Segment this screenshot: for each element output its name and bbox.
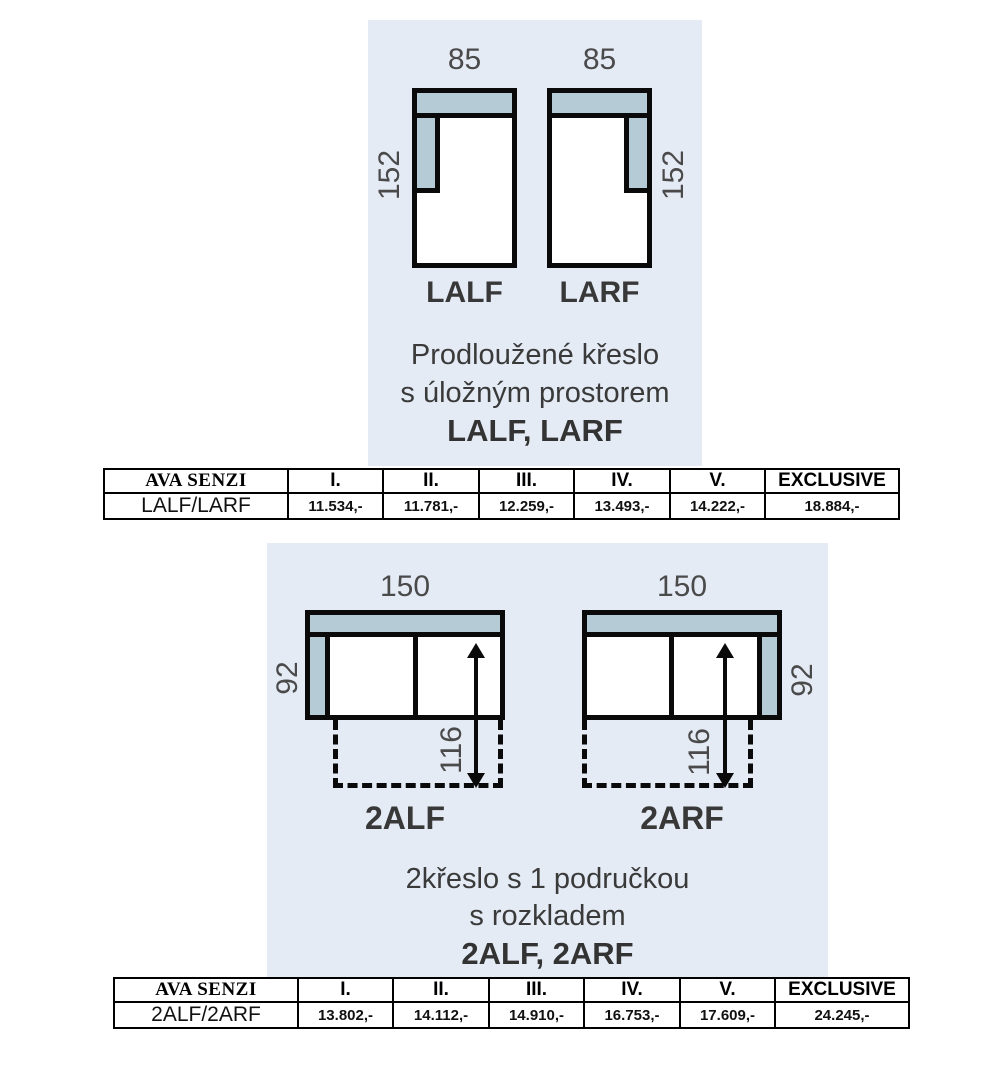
2arf-model-label: 2ARF [582, 801, 782, 835]
catalog-page: { "colors": { "panel_bg": "#e4ebf5", "cu… [0, 0, 993, 1080]
table1-header-exclusive: EXCLUSIVE [765, 469, 899, 493]
table1-header-v: V. [670, 469, 765, 493]
arrow-shaft [474, 658, 478, 773]
table-row: AVA SENZI I. II. III. IV. V. EXCLUSIVE [104, 469, 899, 493]
section2-caption-line1: 2křeslo s 1 područkou [267, 861, 828, 898]
table1-price-v: 14.222,- [670, 493, 765, 519]
2alf-depth-arrow-icon [465, 643, 487, 788]
2arf-seat-divider [669, 637, 674, 715]
section2-caption-models: 2ALF, 2ARF [267, 935, 828, 972]
section1-caption-models: LALF, LARF [368, 412, 702, 450]
table-row: 2ALF/2ARF 13.802,- 14.112,- 14.910,- 16.… [114, 1002, 909, 1028]
lalf-backrest [417, 93, 512, 118]
section2-caption: 2křeslo s 1 područkou s rozkladem 2ALF, … [267, 861, 828, 972]
2alf-seat-divider [413, 637, 418, 715]
arrow-up-head [716, 643, 734, 658]
section1-caption-line1: Prodloužené křeslo [368, 336, 702, 374]
table-row: LALF/LARF 11.534,- 11.781,- 12.259,- 13.… [104, 493, 899, 519]
table2-price-v: 17.609,- [680, 1002, 775, 1028]
arrow-down-head [467, 773, 485, 788]
table2-price-i: 13.802,- [298, 1002, 393, 1028]
table2-price-ii: 14.112,- [393, 1002, 489, 1028]
table2-header-iii: III. [489, 978, 584, 1002]
section1-caption-line2: s úložným prostorem [368, 374, 702, 412]
table2-header-ii: II. [393, 978, 489, 1002]
table2-header-brand: AVA SENZI [114, 978, 298, 1002]
table2-header-v: V. [680, 978, 775, 1002]
2arf-width-dimension: 150 [582, 571, 782, 603]
table2-price-iii: 14.910,- [489, 1002, 584, 1028]
2alf-armrest [310, 637, 330, 715]
table1-header-iii: III. [479, 469, 574, 493]
2arf-depth-arrow-icon [714, 643, 736, 788]
table1-price-exclusive: 18.884,- [765, 493, 899, 519]
arrow-shaft [723, 658, 727, 773]
table1-header-i: I. [288, 469, 383, 493]
price-table-2alf-2arf: AVA SENZI I. II. III. IV. V. EXCLUSIVE 2… [113, 977, 910, 1029]
arrow-down-head [716, 773, 734, 788]
table1-price-iv: 13.493,- [574, 493, 670, 519]
2arf-floorplan [582, 610, 782, 720]
table1-header-brand: AVA SENZI [104, 469, 288, 493]
2arf-backrest [587, 615, 777, 637]
2alf-height-dimension: 92 [274, 648, 302, 708]
larf-armrest [624, 118, 647, 193]
2alf-model-label: 2ALF [305, 801, 505, 835]
table2-header-exclusive: EXCLUSIVE [775, 978, 909, 1002]
table2-model: 2ALF/2ARF [114, 1002, 298, 1028]
2alf-extension-dimension: 116 [438, 715, 466, 785]
lalf-floorplan [412, 88, 517, 268]
section-2alf-2arf: 150 92 116 2ALF 150 92 116 2ARF 2křeslo … [267, 543, 828, 977]
table1-price-ii: 11.781,- [383, 493, 479, 519]
table2-price-iv: 16.753,- [584, 1002, 680, 1028]
2arf-extension-dimension: 116 [686, 717, 714, 787]
section1-caption: Prodloužené křeslo s úložným prostorem L… [368, 336, 702, 450]
table1-price-iii: 12.259,- [479, 493, 574, 519]
table1-price-i: 11.534,- [288, 493, 383, 519]
2alf-backrest [310, 615, 500, 637]
table1-model: LALF/LARF [104, 493, 288, 519]
table2-header-i: I. [298, 978, 393, 1002]
price-table-lalf-larf: AVA SENZI I. II. III. IV. V. EXCLUSIVE L… [103, 468, 900, 520]
table2-header-iv: IV. [584, 978, 680, 1002]
larf-backrest [552, 93, 647, 118]
section-lalf-larf: 85 152 LALF 85 152 LARF Prodloužené křes… [368, 20, 702, 466]
table2-price-exclusive: 24.245,- [775, 1002, 909, 1028]
lalf-armrest [417, 118, 440, 193]
larf-floorplan [547, 88, 652, 268]
2alf-width-dimension: 150 [305, 571, 505, 603]
larf-width-dimension: 85 [547, 44, 652, 76]
table1-header-iv: IV. [574, 469, 670, 493]
larf-model-label: LARF [547, 276, 652, 310]
2arf-height-dimension: 92 [789, 650, 817, 710]
table1-header-ii: II. [383, 469, 479, 493]
larf-height-dimension: 152 [659, 130, 689, 220]
section2-caption-line2: s rozkladem [267, 898, 828, 935]
lalf-model-label: LALF [412, 276, 517, 310]
2arf-armrest [757, 637, 777, 715]
lalf-height-dimension: 152 [375, 130, 405, 220]
table-row: AVA SENZI I. II. III. IV. V. EXCLUSIVE [114, 978, 909, 1002]
lalf-width-dimension: 85 [412, 44, 517, 76]
arrow-up-head [467, 643, 485, 658]
